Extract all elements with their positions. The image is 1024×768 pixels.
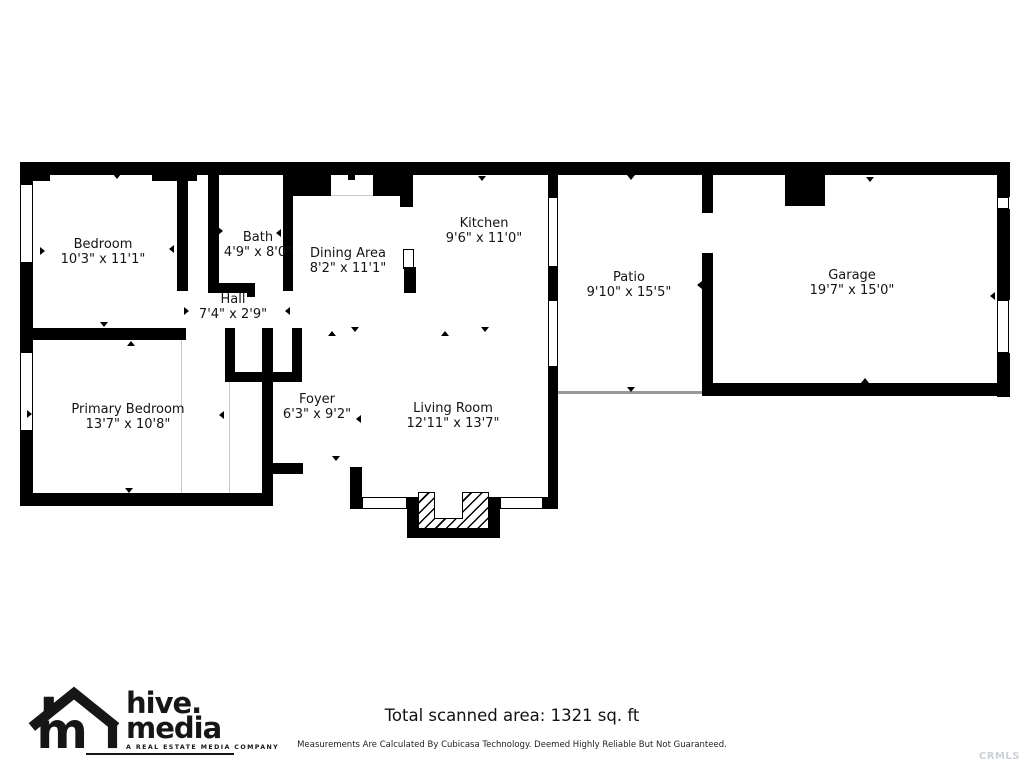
wall — [404, 267, 416, 293]
window — [997, 197, 1009, 209]
door-marker — [246, 286, 254, 291]
room-name: Bath — [224, 230, 292, 245]
room-name: Living Room — [407, 401, 500, 416]
wall — [997, 162, 1010, 197]
door-marker — [627, 387, 635, 392]
wall — [548, 267, 558, 300]
room-name: Kitchen — [446, 216, 522, 231]
wall — [20, 493, 273, 506]
door-leaf — [403, 249, 414, 269]
door-marker — [866, 177, 874, 182]
room-dims: 4'9" x 8'0" — [224, 245, 292, 260]
room-label-garage: Garage 19'7" x 15'0" — [810, 268, 895, 298]
room-dims: 12'11" x 13'7" — [407, 416, 500, 431]
sliding-door — [548, 300, 558, 367]
wall — [20, 175, 50, 181]
room-name: Primary Bedroom — [71, 402, 184, 417]
door-marker — [328, 331, 336, 336]
measurement-disclaimer: Measurements Are Calculated By Cubicasa … — [0, 740, 1024, 750]
wall — [785, 175, 825, 206]
fireplace-box — [434, 492, 463, 519]
door-marker — [218, 227, 223, 235]
door-marker — [169, 245, 174, 253]
room-name: Bedroom — [61, 237, 146, 252]
room-dims: 7'4" x 2'9" — [199, 307, 267, 322]
wall — [702, 253, 713, 390]
room-label-bedroom: Bedroom 10'3" x 11'1" — [61, 237, 146, 267]
window — [20, 352, 33, 431]
door-marker — [40, 247, 45, 255]
wall — [400, 175, 413, 207]
crmls-watermark: CRMLS — [979, 751, 1020, 762]
room-name: Garage — [810, 268, 895, 283]
room-dims: 19'7" x 15'0" — [810, 283, 895, 298]
room-label-living-room: Living Room 12'11" x 13'7" — [407, 401, 500, 431]
wall — [543, 497, 558, 509]
door-marker — [861, 378, 869, 383]
room-name: Dining Area — [310, 246, 386, 261]
open-boundary-line — [229, 382, 230, 493]
wall — [20, 162, 33, 185]
door-marker — [356, 415, 361, 423]
door-marker — [184, 307, 189, 315]
door-marker — [125, 488, 133, 493]
room-label-kitchen: Kitchen 9'6" x 11'0" — [446, 216, 522, 246]
room-dims: 13'7" x 10'8" — [71, 417, 184, 432]
door-marker — [276, 229, 281, 237]
floor-plan-page: Bedroom 10'3" x 11'1" Bath 4'9" x 8'0" H… — [0, 0, 1024, 768]
door-marker — [113, 174, 121, 179]
total-scanned-area: Total scanned area: 1321 sq. ft — [0, 706, 1024, 725]
window — [548, 197, 558, 267]
wall — [225, 372, 302, 382]
room-dims: 9'6" x 11'0" — [446, 231, 522, 246]
room-dims: 10'3" x 11'1" — [61, 252, 146, 267]
room-label-hall: Hall 7'4" x 2'9" — [199, 292, 267, 322]
room-dims: 8'2" x 11'1" — [310, 261, 386, 276]
door-marker — [441, 331, 449, 336]
door-marker — [348, 175, 355, 180]
door-marker — [697, 281, 702, 289]
room-label-dining-area: Dining Area 8'2" x 11'1" — [310, 246, 386, 276]
wall — [350, 467, 362, 509]
room-name: Foyer — [283, 392, 351, 407]
window — [362, 497, 407, 509]
logo-underline — [86, 753, 234, 755]
wall — [152, 175, 197, 181]
door-marker — [27, 410, 32, 418]
wall — [548, 175, 558, 197]
wall — [548, 367, 558, 506]
wall — [702, 383, 1010, 396]
room-name: Patio — [587, 270, 672, 285]
window — [20, 184, 33, 263]
door-marker — [285, 307, 290, 315]
door-marker — [478, 176, 486, 181]
door-marker — [127, 341, 135, 346]
wall — [262, 463, 303, 474]
window — [500, 497, 543, 509]
room-label-foyer: Foyer 6'3" x 9'2" — [283, 392, 351, 422]
room-label-bath: Bath 4'9" x 8'0" — [224, 230, 292, 260]
door-marker — [627, 175, 635, 180]
wall — [262, 328, 273, 506]
wall — [997, 209, 1010, 300]
wall — [20, 328, 186, 340]
open-boundary-line — [331, 195, 373, 196]
wall — [177, 175, 188, 291]
door-marker — [445, 528, 453, 533]
door-marker — [990, 292, 995, 300]
door-marker — [219, 411, 224, 419]
wall — [20, 162, 1010, 175]
room-label-primary-bedroom: Primary Bedroom 13'7" x 10'8" — [71, 402, 184, 432]
window — [997, 300, 1009, 353]
room-name: Hall — [199, 292, 267, 307]
door-marker — [351, 327, 359, 332]
door-marker — [332, 456, 340, 461]
room-dims: 6'3" x 9'2" — [283, 407, 351, 422]
door-marker — [481, 327, 489, 332]
door-marker — [100, 322, 108, 327]
wall — [702, 175, 713, 213]
room-dims: 9'10" x 15'5" — [587, 285, 672, 300]
room-label-patio: Patio 9'10" x 15'5" — [587, 270, 672, 300]
wall — [407, 529, 500, 538]
